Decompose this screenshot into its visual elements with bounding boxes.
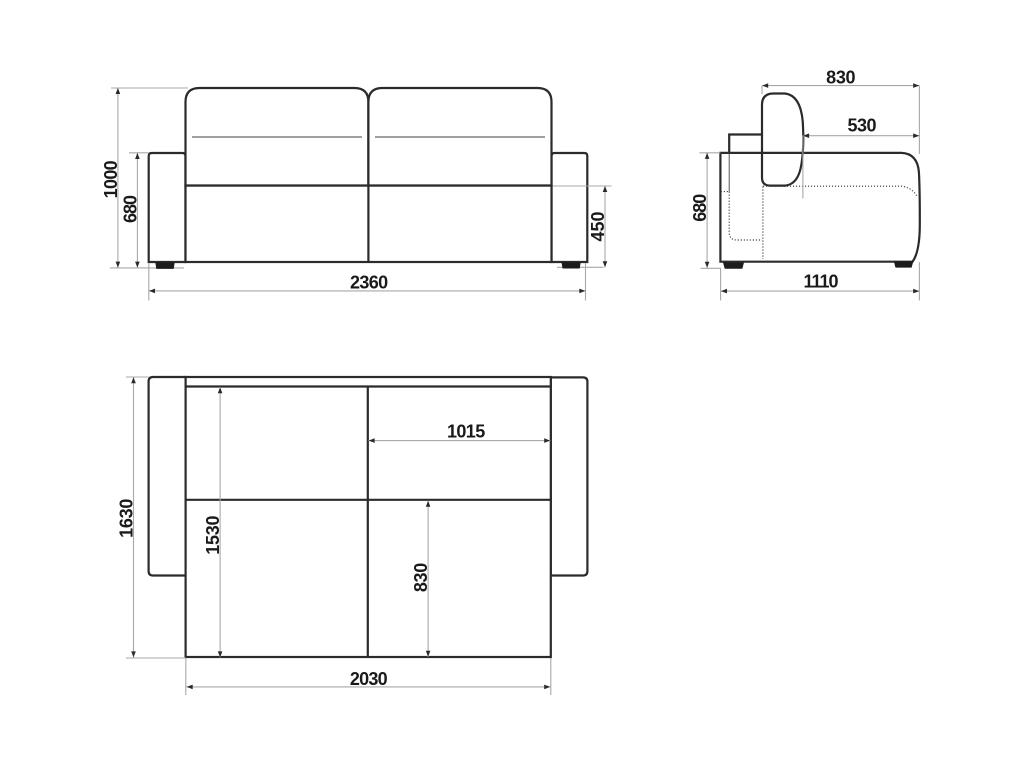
svg-text:530: 530 <box>847 115 876 135</box>
svg-text:450: 450 <box>588 211 608 241</box>
svg-text:680: 680 <box>120 195 140 223</box>
svg-text:680: 680 <box>690 194 710 222</box>
svg-text:1015: 1015 <box>447 422 485 442</box>
svg-text:830: 830 <box>411 563 431 592</box>
svg-text:1110: 1110 <box>804 271 839 291</box>
svg-text:2360: 2360 <box>350 272 388 292</box>
svg-text:1630: 1630 <box>116 499 136 538</box>
svg-text:1530: 1530 <box>203 516 223 555</box>
svg-text:830: 830 <box>826 67 855 87</box>
svg-text:1000: 1000 <box>101 160 121 198</box>
svg-text:2030: 2030 <box>350 669 388 689</box>
